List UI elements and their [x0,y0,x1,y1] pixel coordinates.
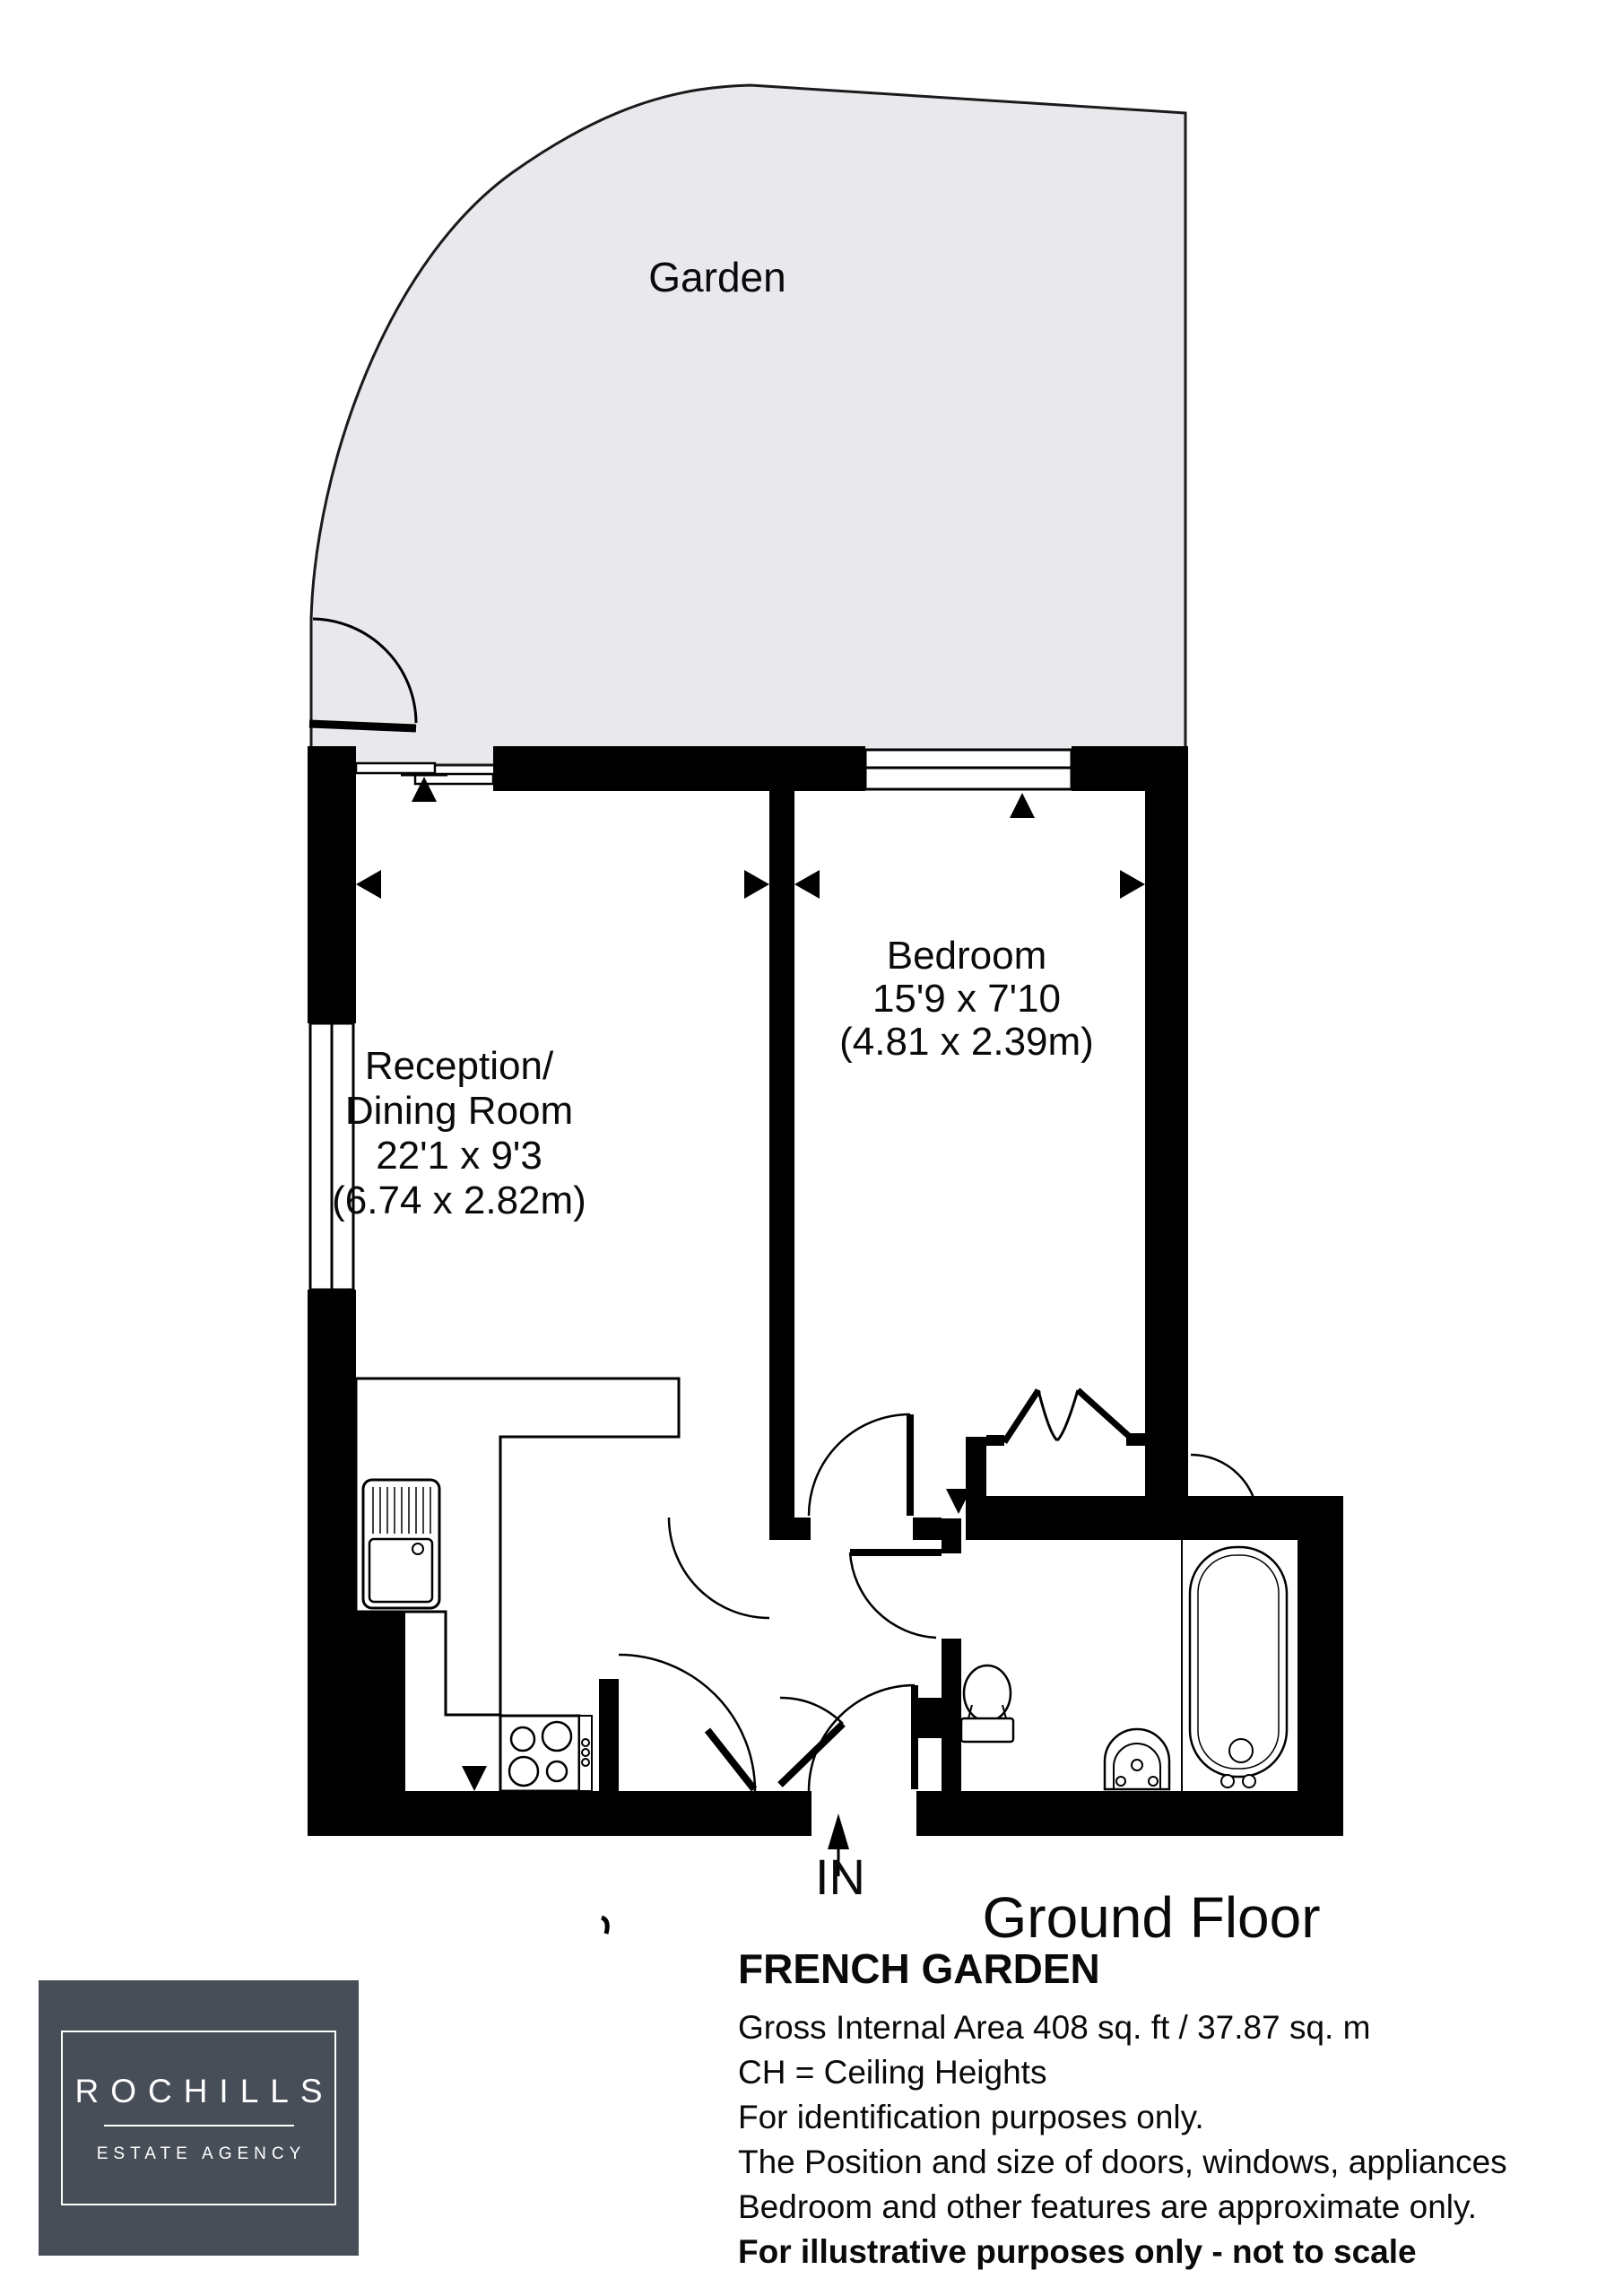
stray-mark [602,1918,607,1934]
hob-knob [582,1739,589,1746]
basin-tap [1149,1777,1158,1786]
wall [916,1791,1343,1836]
bedroom-window [865,750,1072,768]
wall [308,1290,356,1613]
footer-note-scale: For illustrative purposes only - not to … [738,2230,1599,2274]
footer-note-ch: CH = Ceiling Heights [738,2050,1599,2095]
arrow-up-icon [1010,793,1035,818]
reception-label-line1: Reception/ [365,1044,554,1088]
basin-drain [1132,1760,1142,1770]
bedroom-door-arc [809,1414,910,1516]
kitchen-door [707,1730,754,1789]
wall [599,1679,619,1791]
entrance-label: IN [815,1848,865,1905]
wall [913,1518,942,1540]
bedroom-dims-metric: (4.81 x 2.39m) [839,1020,1094,1064]
rochills-logo: ROCHILLS ESTATE AGENCY [39,1980,359,2256]
bifold-leaf [1004,1390,1038,1442]
wall [942,1518,961,1553]
arrow-left-icon [794,870,820,899]
wall [308,746,356,1023]
hob-burner [542,1722,571,1751]
wall [966,1496,1343,1540]
logo-tagline: ESTATE AGENCY [91,2144,307,2164]
closet-jamb [986,1435,1004,1446]
bifold-fold [1057,1390,1078,1440]
bifold-fold [1038,1390,1057,1440]
wall [769,791,794,1518]
logo-brand-text: ROCHILLS [63,2073,334,2110]
garden-area [311,85,1185,765]
footer-note-position: The Position and size of doors, windows,… [738,2140,1599,2185]
reception-label-line2: Dining Room [345,1089,573,1133]
garden-gate-door [309,724,416,728]
footer-notes: FRENCH GARDEN Gross Internal Area 408 sq… [738,1944,1599,2274]
garden [309,85,1185,765]
closet-bifold-doors [1004,1390,1132,1442]
arrow-down-icon [462,1766,487,1791]
wall [769,1518,811,1540]
toilet-tank [961,1718,1013,1742]
logo-divider [104,2125,294,2126]
wall [942,1639,961,1791]
reception-dims-imperial: 22'1 x 9'3 [376,1134,542,1178]
hob-knob [582,1749,589,1756]
wall [493,746,865,791]
arrow-right-icon [744,870,769,899]
sink-tap [412,1544,423,1554]
bathtub-inner [1198,1555,1279,1769]
bath-drain [1229,1739,1253,1762]
wall [966,1437,986,1496]
floorplan-page: IN Garden Reception/ Dining Room 22'1 x … [0,0,1623,2296]
arrow-right-icon [1120,870,1145,899]
in-arrow-icon [828,1813,849,1849]
garden-label: Garden [648,254,785,300]
floor-label: Ground Floor [982,1885,1320,1950]
kitchen-door-arc [619,1655,755,1791]
reception-dims-metric: (6.74 x 2.82m) [332,1178,586,1222]
logo-inner-border: ROCHILLS ESTATE AGENCY [61,2031,336,2205]
footer-note-approximate: Bedroom and other features are approxima… [738,2185,1599,2230]
toilet-bowl [964,1665,1011,1721]
hall-door-arc [780,1698,843,1724]
hob-burner [547,1761,567,1781]
bathroom-door-arc [850,1552,936,1638]
hob-knob [582,1759,589,1766]
bath-tap [1221,1775,1234,1787]
hob-burner [511,1727,534,1751]
bath-tap [1243,1775,1255,1787]
bifold-leaf [1078,1390,1132,1439]
bedroom-window [865,768,1072,789]
wall [308,1791,811,1836]
bedroom-dims-imperial: 15'9 x 7'10 [872,977,1061,1021]
hall-door [780,1724,843,1785]
footer-note-area: Gross Internal Area 408 sq. ft / 37.87 s… [738,2005,1599,2050]
entrance-marker: IN [815,1813,865,1905]
hob-burner [509,1757,538,1786]
wall [1072,746,1188,791]
footer-note-identification: For identification purposes only. [738,2095,1599,2140]
wall [1145,791,1188,1496]
property-title: FRENCH GARDEN [738,1944,1599,1993]
reception-door-arc [669,1518,769,1618]
bathroom-fixtures [961,1540,1287,1791]
basin-tap [1116,1777,1125,1786]
sliding-patio-door [356,763,435,773]
arrow-left-icon [356,870,381,899]
bedroom-label: Bedroom [887,934,1047,978]
